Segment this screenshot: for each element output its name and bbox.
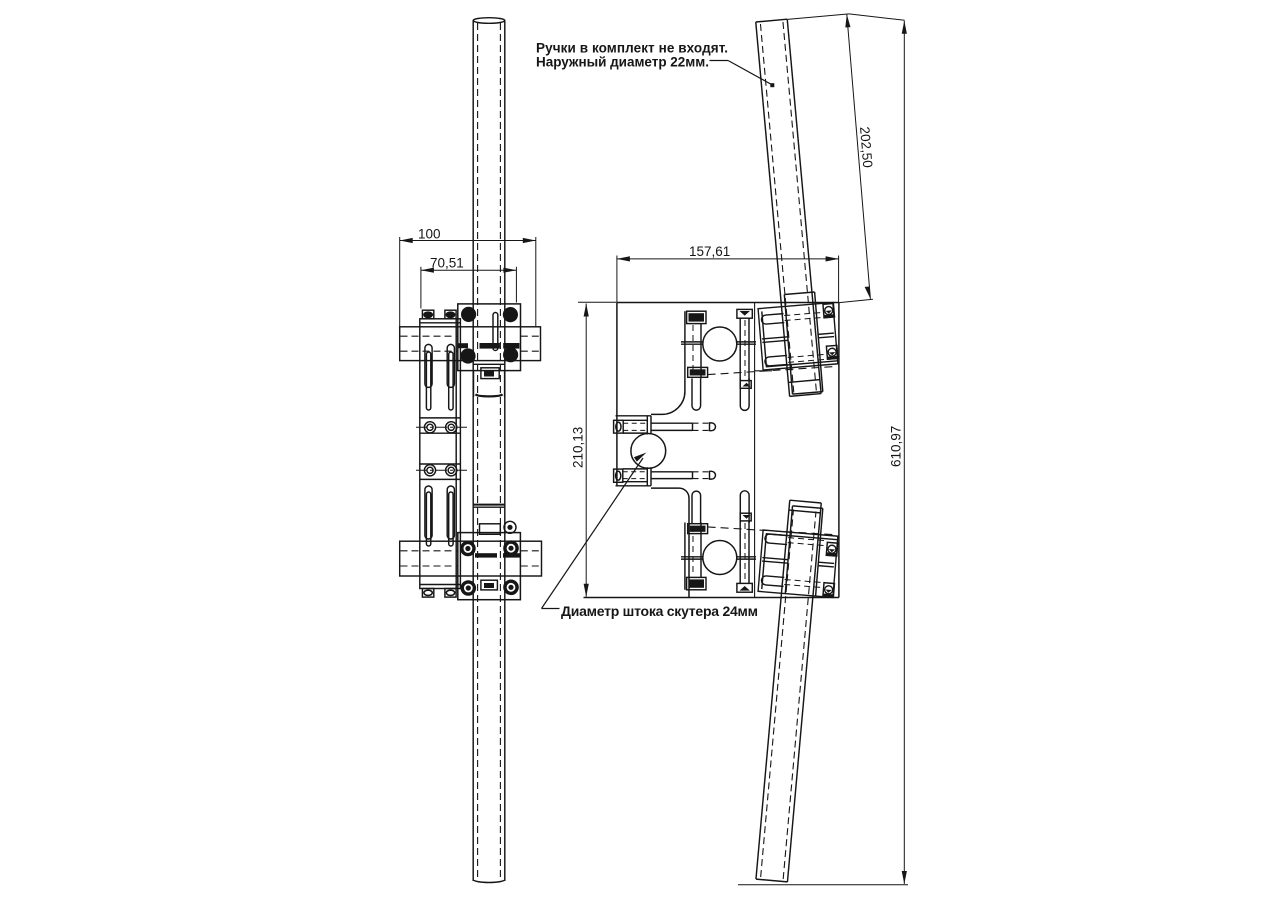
svg-text:100: 100 <box>418 227 441 242</box>
svg-text:Диаметр штока скутера 24мм: Диаметр штока скутера 24мм <box>561 603 758 619</box>
svg-text:610,97: 610,97 <box>889 426 904 467</box>
svg-text:Ручки в комплект не входят.: Ручки в комплект не входят. <box>536 40 728 55</box>
svg-text:Наружный диаметр 22мм.: Наружный диаметр 22мм. <box>536 54 709 69</box>
svg-text:210,13: 210,13 <box>571 427 586 468</box>
svg-text:70,51: 70,51 <box>430 256 464 271</box>
svg-text:202,50: 202,50 <box>857 126 875 168</box>
svg-text:157,61: 157,61 <box>689 244 730 259</box>
